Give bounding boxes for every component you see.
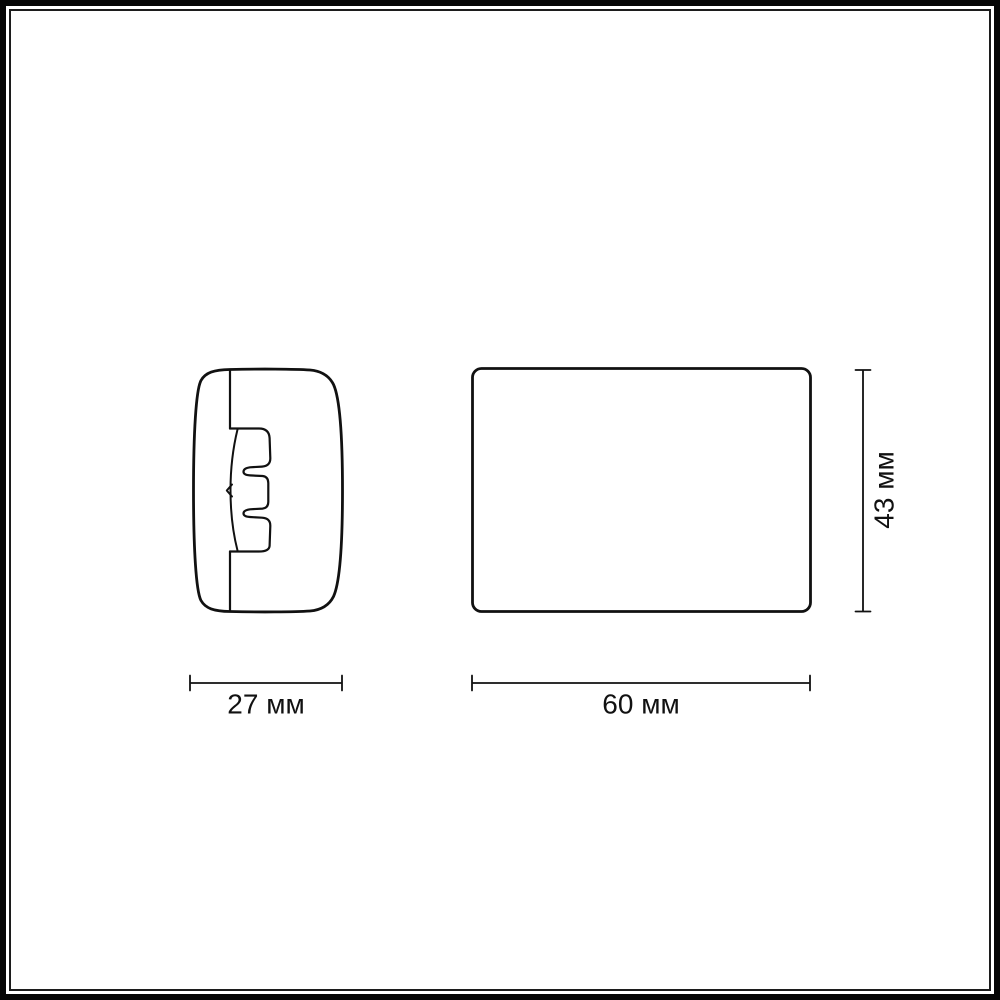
front-view-drawing [473, 369, 811, 612]
side-width-dimension-label: 27 мм [227, 689, 304, 720]
side-view-drawing [194, 369, 343, 612]
front-view-body-outline [473, 369, 811, 612]
side-view-button-face-curve [231, 430, 238, 551]
technical-drawing: 27 мм 60 мм 43 мм [0, 0, 1000, 1000]
front-height-dimension: 43 мм [856, 370, 900, 612]
front-width-dimension-label: 60 мм [602, 689, 679, 720]
side-width-dimension: 27 мм [190, 676, 342, 720]
product-dimension-diagram: 27 мм 60 мм 43 мм [0, 0, 1000, 1000]
front-height-dimension-label: 43 мм [869, 451, 900, 528]
front-width-dimension: 60 мм [472, 676, 810, 720]
side-view-switch-button-profile [230, 429, 270, 552]
